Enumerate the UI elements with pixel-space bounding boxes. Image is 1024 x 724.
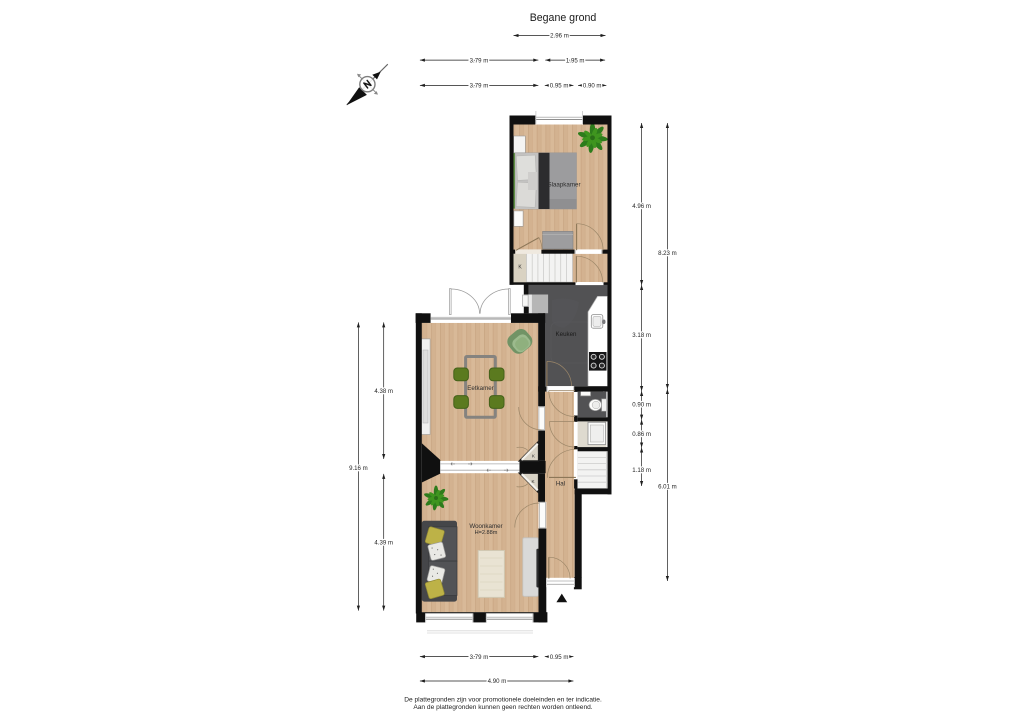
- svg-text:1.95 m: 1.95 m: [566, 57, 585, 64]
- svg-text:0.90 m: 0.90 m: [583, 83, 602, 90]
- svg-text:0.86 m: 0.86 m: [632, 431, 651, 438]
- svg-text:Keuken: Keuken: [556, 331, 578, 338]
- svg-text:0.95 m: 0.95 m: [550, 654, 569, 661]
- svg-text:0.90 m: 0.90 m: [632, 402, 651, 409]
- svg-text:2.96 m: 2.96 m: [550, 33, 569, 40]
- svg-text:Eetkamer: Eetkamer: [467, 385, 493, 392]
- svg-text:4.96 m: 4.96 m: [632, 203, 651, 210]
- svg-text:8.23 m: 8.23 m: [658, 250, 677, 257]
- svg-text:3.79 m: 3.79 m: [470, 654, 489, 661]
- svg-text:H=2.88m: H=2.88m: [475, 530, 498, 536]
- svg-text:4.38 m: 4.38 m: [374, 388, 393, 395]
- svg-text:3.79 m: 3.79 m: [470, 83, 489, 90]
- svg-text:Woonkamer: Woonkamer: [469, 523, 502, 530]
- svg-text:Slaapkamer: Slaapkamer: [547, 182, 580, 189]
- svg-text:Begane grond: Begane grond: [530, 12, 597, 24]
- svg-text:De plattegronden zijn voor pro: De plattegronden zijn voor promotionele …: [404, 697, 602, 704]
- svg-text:6.01 m: 6.01 m: [658, 484, 677, 491]
- svg-text:3.18 m: 3.18 m: [632, 332, 651, 339]
- svg-text:1.18 m: 1.18 m: [632, 467, 651, 474]
- svg-text:3.79 m: 3.79 m: [470, 57, 489, 64]
- svg-text:9.16 m: 9.16 m: [349, 465, 368, 472]
- svg-text:Hal: Hal: [556, 480, 565, 487]
- svg-text:4.90 m: 4.90 m: [488, 678, 507, 685]
- svg-text:4.39 m: 4.39 m: [374, 540, 393, 547]
- svg-text:Aan de plattegronden kunnen ge: Aan de plattegronden kunnen geen rechten…: [413, 704, 592, 711]
- svg-text:0.95 m: 0.95 m: [550, 83, 569, 90]
